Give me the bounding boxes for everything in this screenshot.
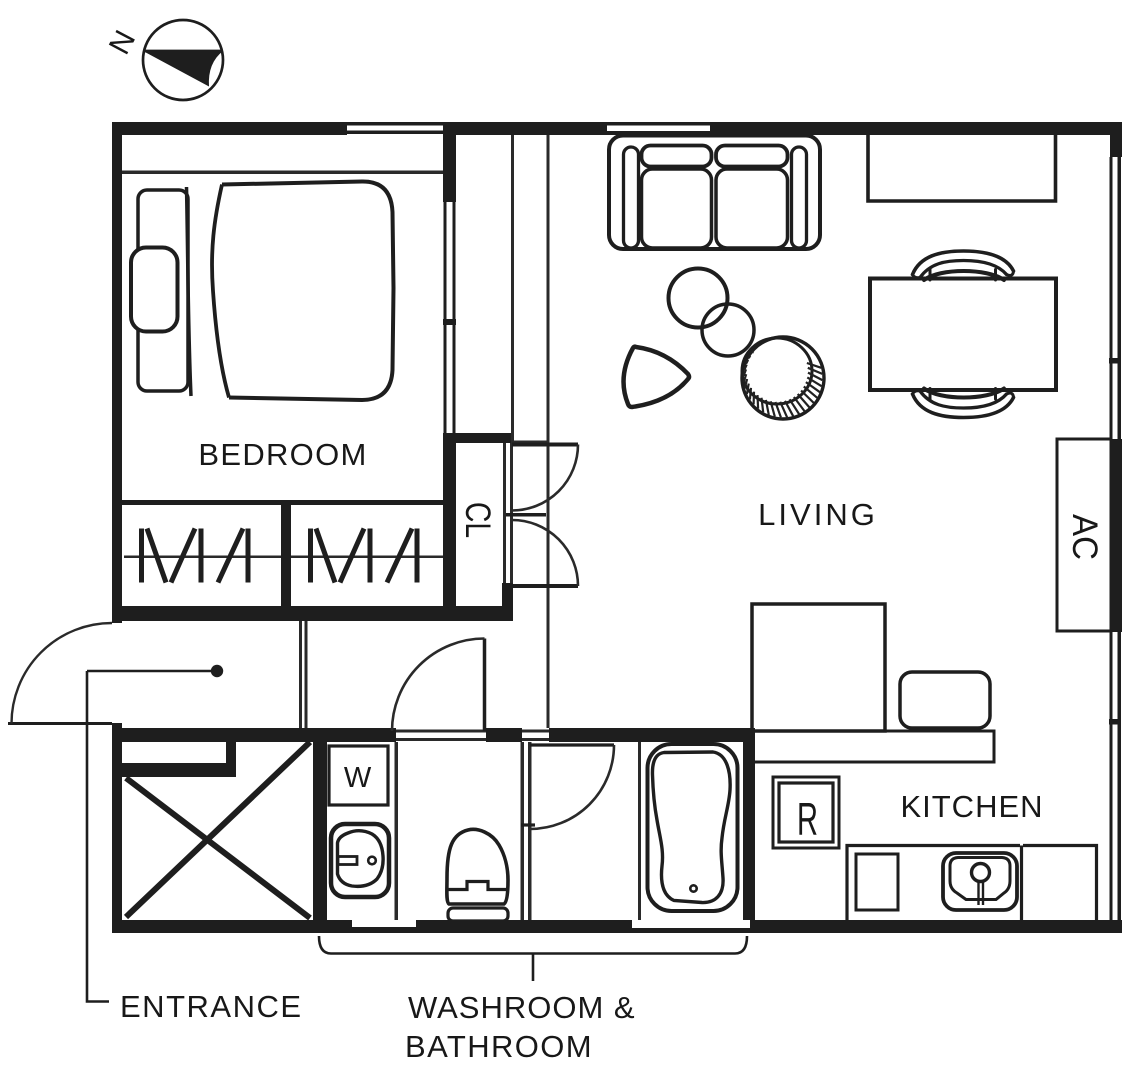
svg-text:KITCHEN: KITCHEN — [900, 789, 1043, 824]
svg-text:CL: CL — [458, 502, 497, 538]
svg-text:BATHROOM: BATHROOM — [405, 1029, 593, 1064]
svg-text:BEDROOM: BEDROOM — [198, 437, 367, 472]
svg-text:R: R — [797, 793, 818, 845]
svg-text:ENTRANCE: ENTRANCE — [120, 989, 303, 1024]
svg-text:LIVING: LIVING — [758, 497, 878, 532]
svg-text:AC: AC — [1065, 514, 1104, 560]
svg-text:W: W — [344, 762, 372, 794]
svg-text:WASHROOM &: WASHROOM & — [408, 990, 636, 1025]
